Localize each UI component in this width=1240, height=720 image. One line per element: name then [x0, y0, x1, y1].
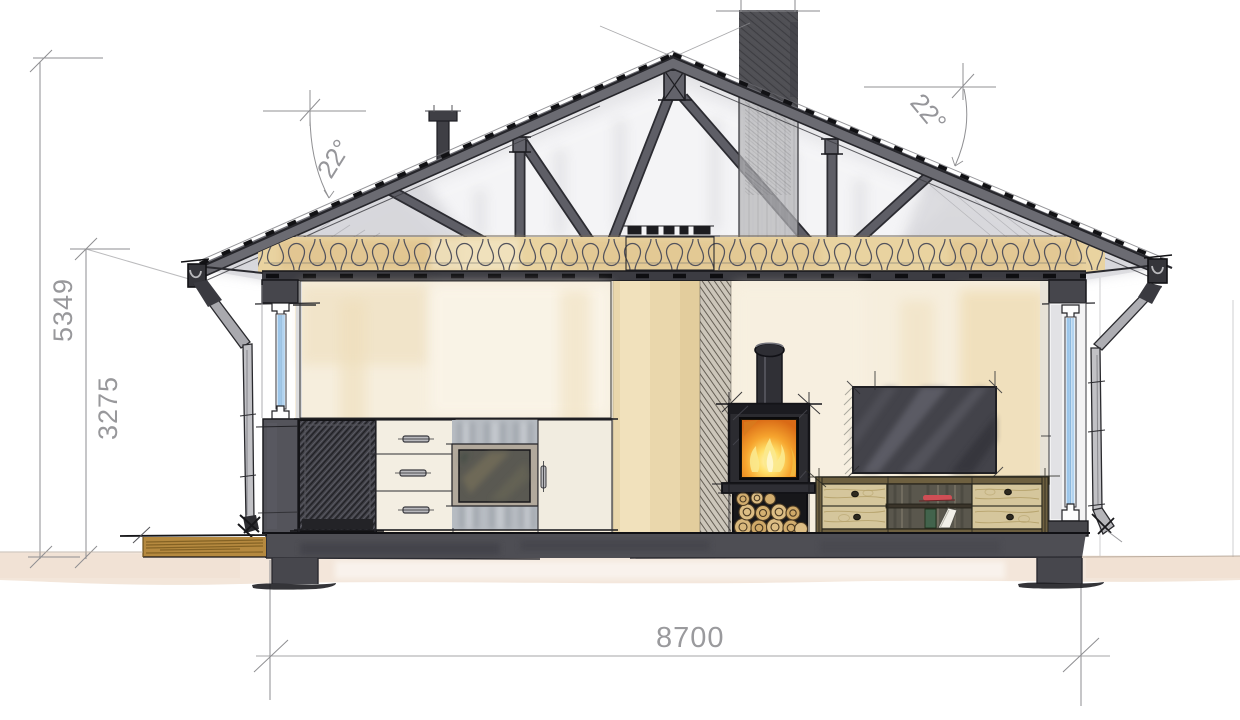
svg-text:8700: 8700: [656, 622, 725, 654]
svg-text:5349: 5349: [48, 278, 78, 342]
svg-text:3275: 3275: [93, 376, 123, 440]
